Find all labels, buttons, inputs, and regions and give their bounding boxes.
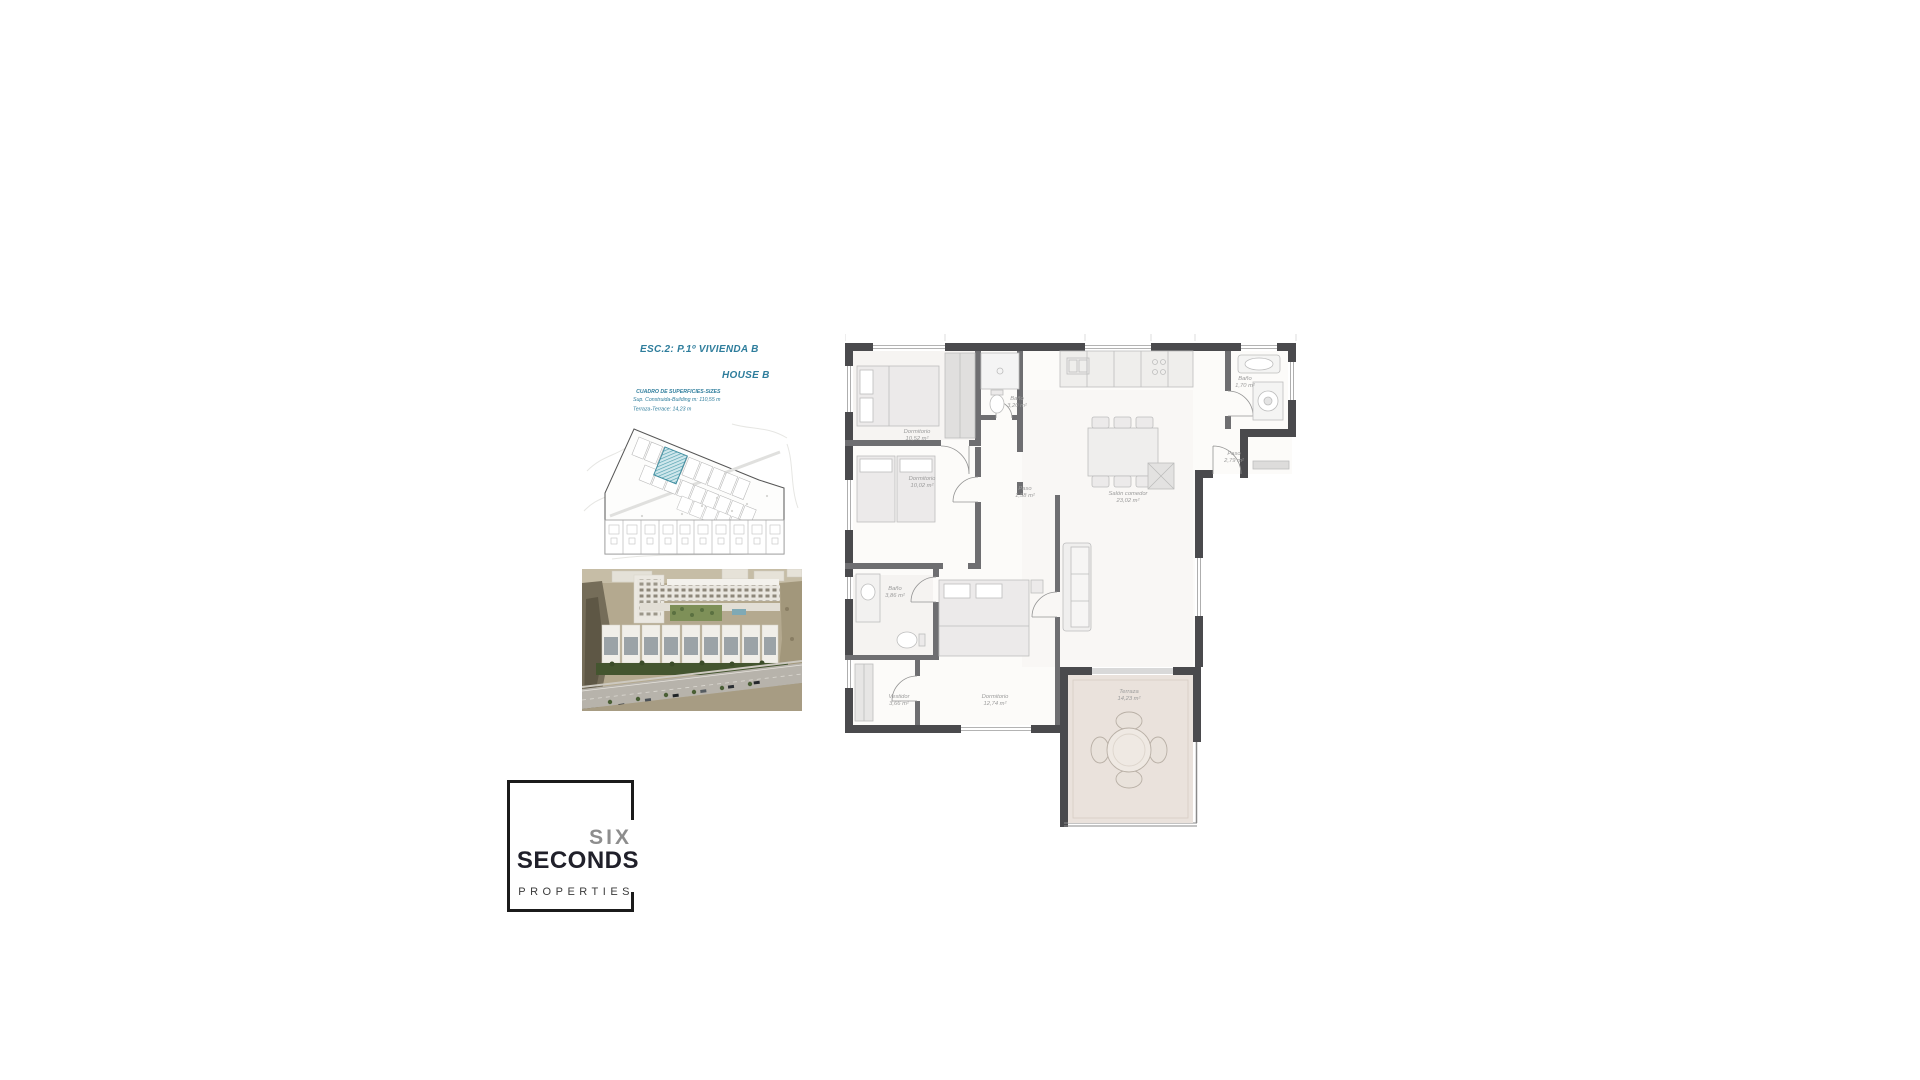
surface-built-row: Sup. Construida-Building m: 110,55 m bbox=[633, 396, 799, 404]
svg-text:Dormitorio: Dormitorio bbox=[982, 694, 1010, 700]
svg-text:10,52 m²: 10,52 m² bbox=[906, 436, 930, 442]
svg-text:Baño: Baño bbox=[1238, 376, 1252, 382]
bed-double-1 bbox=[857, 366, 939, 426]
tv-bench bbox=[1253, 461, 1289, 469]
toilet-3 bbox=[897, 632, 925, 648]
svg-text:Dormitorio: Dormitorio bbox=[909, 476, 937, 482]
svg-text:3,66 m²: 3,66 m² bbox=[889, 701, 910, 707]
svg-text:Terraza: Terraza bbox=[1119, 689, 1139, 695]
svg-text:10,02 m²: 10,02 m² bbox=[911, 483, 935, 489]
site-townhouse-band bbox=[605, 520, 784, 554]
svg-text:14,23 m²: 14,23 m² bbox=[1118, 696, 1142, 702]
svg-text:12,74 m²: 12,74 m² bbox=[984, 701, 1008, 707]
terrace-rail-bottom bbox=[1064, 823, 1197, 826]
logo-word-seconds: SECONDS bbox=[517, 847, 639, 875]
wardrobe-1 bbox=[945, 353, 975, 438]
svg-text:Salón comedor: Salón comedor bbox=[1109, 491, 1149, 497]
room-label-dormitorio-2: Dormitorio 10,02 m² bbox=[909, 476, 937, 489]
side-table bbox=[1148, 463, 1174, 489]
brand-logo: SIX SECONDS PROPERTIES bbox=[507, 780, 637, 912]
logo-border-bottom bbox=[507, 909, 634, 912]
svg-text:Baño: Baño bbox=[1010, 396, 1024, 402]
site-plan bbox=[582, 416, 815, 563]
svg-text:Dormitorio: Dormitorio bbox=[904, 429, 932, 435]
svg-text:2,79 m²: 2,79 m² bbox=[1223, 458, 1245, 464]
sink-wing bbox=[1238, 355, 1280, 373]
room-label-vestidor: Vestidor 3,66 m² bbox=[888, 694, 910, 707]
house-label: HOUSE B bbox=[722, 370, 770, 381]
floor-plan: Dormitorio 10,52 m² Baño 3,20 m² Dormito… bbox=[845, 330, 1310, 835]
aerial-townhouse-row bbox=[602, 625, 778, 663]
dimension-ticks bbox=[845, 334, 1296, 341]
logo-border-left bbox=[507, 780, 510, 912]
svg-text:Paso: Paso bbox=[1227, 451, 1241, 457]
svg-text:3,86 m²: 3,86 m² bbox=[885, 593, 906, 599]
surface-terrace-row: Terraza-Terrace: 14,23 m bbox=[633, 405, 799, 413]
room-label-dormitorio-3: Dormitorio 12,74 m² bbox=[982, 694, 1010, 707]
dining-table bbox=[1088, 417, 1158, 487]
plan-title: ESC.2: P.1º VIVIENDA B bbox=[640, 344, 759, 355]
svg-text:23,02 m²: 23,02 m² bbox=[1116, 498, 1141, 504]
svg-text:3,20 m²: 3,20 m² bbox=[1007, 403, 1028, 409]
surface-table-title: CUADRO DE SUPERFICIES-SIZES bbox=[633, 388, 799, 396]
svg-text:Baño: Baño bbox=[888, 586, 902, 592]
bed-double-master bbox=[939, 580, 1043, 656]
svg-text:Paso: Paso bbox=[1018, 486, 1032, 492]
aerial-render-photo bbox=[582, 569, 802, 711]
room-label-dormitorio-1: Dormitorio 10,52 m² bbox=[904, 429, 932, 442]
logo-border-right-top bbox=[631, 780, 634, 820]
svg-text:1,58 m²: 1,58 m² bbox=[1015, 493, 1036, 499]
surface-table: CUADRO DE SUPERFICIES-SIZES Sup. Constru… bbox=[633, 388, 799, 413]
sofa bbox=[1063, 543, 1091, 631]
washing-machine bbox=[1253, 382, 1283, 420]
logo-word-properties: PROPERTIES bbox=[518, 886, 634, 898]
toilet-1 bbox=[990, 390, 1004, 413]
vanity-3 bbox=[856, 574, 880, 622]
kitchen-counter bbox=[1060, 351, 1193, 387]
svg-text:Vestidor: Vestidor bbox=[888, 694, 910, 700]
logo-border-top bbox=[507, 780, 634, 783]
room-label-terraza: Terraza 14,23 m² bbox=[1118, 689, 1142, 702]
shower-1 bbox=[981, 353, 1019, 389]
svg-text:1,70 m²: 1,70 m² bbox=[1235, 383, 1256, 389]
sheet: ESC.2: P.1º VIVIENDA B HOUSE B CUADRO DE… bbox=[0, 0, 1920, 1080]
closet-rail bbox=[855, 664, 873, 721]
